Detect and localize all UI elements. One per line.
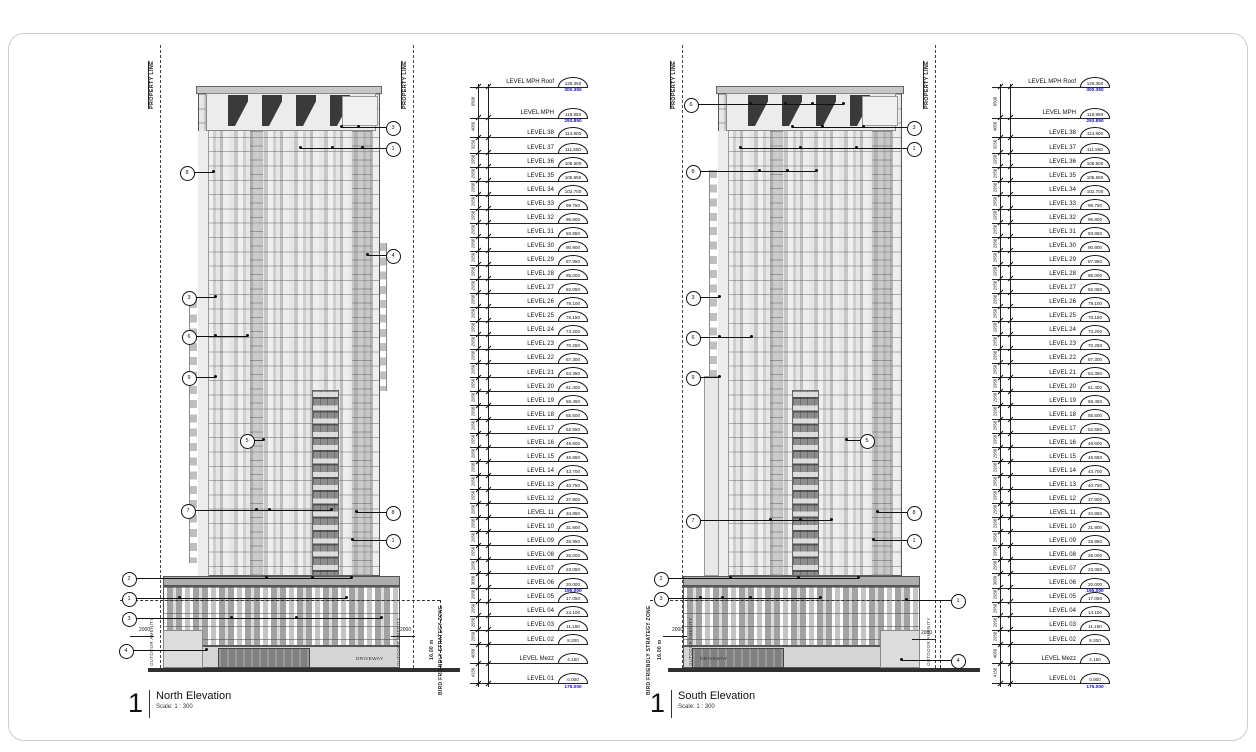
- level-label: LEVEL 24: [492, 327, 554, 334]
- keynote-circle: 3: [182, 291, 197, 306]
- keynote-circle: 4: [119, 644, 134, 659]
- level-label: LEVEL 31: [492, 229, 554, 236]
- bird-zone-height-label: 16.00 m: [657, 598, 663, 660]
- keynote-leader-dot: [268, 508, 271, 511]
- keynote-leader: [906, 600, 951, 601]
- property-line-label: PROPERTY LINE: [402, 47, 408, 109]
- keynote-leader-dot: [205, 648, 208, 651]
- setback-dimension-line: [912, 639, 936, 640]
- keynote-leader-dot: [821, 125, 824, 128]
- level-label: LEVEL 09: [492, 538, 554, 545]
- keynote-leader: [194, 510, 332, 511]
- keynote-leader: [667, 578, 859, 579]
- view-number: 1: [128, 690, 143, 716]
- keynote-circle: 8: [386, 506, 401, 521]
- level-label: LEVEL 19: [1014, 398, 1076, 405]
- north-dark-strip: [312, 390, 339, 576]
- level-label: LEVEL Mezz: [492, 656, 554, 663]
- keynote-leader-dot: [345, 596, 348, 599]
- keynote-leader-dot: [791, 125, 794, 128]
- south-tabs: [709, 170, 717, 376]
- level-label: LEVEL 32: [492, 215, 554, 222]
- keynote-circle: 5: [860, 434, 875, 449]
- setback-dimension: 2000: [139, 627, 150, 633]
- level-label: LEVEL 12: [1014, 496, 1076, 503]
- keynote-leader: [667, 598, 821, 599]
- level-label: LEVEL 26: [1014, 299, 1076, 306]
- keynote-circle: 3: [654, 592, 669, 607]
- keynote-leader-dot: [350, 576, 353, 579]
- level-label: LEVEL 20: [1014, 384, 1076, 391]
- keynote-leader: [699, 520, 832, 521]
- level-label: LEVEL 11: [492, 510, 554, 517]
- level-label: LEVEL 33: [492, 201, 554, 208]
- level-line: [1010, 84, 1011, 687]
- keynote-leader: [341, 127, 386, 128]
- bird-zone-vline: [940, 600, 941, 668]
- view-title: South Elevation: [678, 690, 755, 702]
- drawing-canvas: 1 North Elevation Scale: 1 : 300 1 South…: [0, 0, 1256, 752]
- keynote-circle: 7: [686, 514, 701, 529]
- geodetic-elevation: 175.000: [1078, 685, 1112, 690]
- geodetic-elevation: 175.000: [556, 685, 590, 690]
- level-label: LEVEL 15: [492, 454, 554, 461]
- level-label: LEVEL MPH: [492, 110, 554, 117]
- level-label: LEVEL 18: [492, 412, 554, 419]
- level-label: LEVEL 25: [1014, 313, 1076, 320]
- level-label: LEVEL 19: [492, 398, 554, 405]
- bird-zone-line: [120, 600, 440, 601]
- floor-height-dimension: 6500: [993, 91, 998, 113]
- level-label: LEVEL 14: [492, 468, 554, 475]
- keynote-leader-dot: [357, 125, 360, 128]
- driveway-label: DRIVEWAY: [356, 657, 383, 662]
- level-label: LEVEL 10: [492, 524, 554, 531]
- keynote-leader-dot: [718, 375, 721, 378]
- keynote-leader: [901, 660, 951, 661]
- keynote-leader-dot: [819, 596, 822, 599]
- level-label: LEVEL 13: [1014, 482, 1076, 489]
- title-divider: [149, 690, 150, 718]
- property-line: [413, 45, 414, 668]
- keynote-leader-dot: [355, 510, 358, 513]
- level-label: LEVEL 21: [1014, 370, 1076, 377]
- keynote-circle: 2: [122, 572, 137, 587]
- keynote-circle: 4: [386, 249, 401, 264]
- keynote-leader-dot: [799, 518, 802, 521]
- keynote-circle: 6: [686, 331, 701, 346]
- keynote-leader-dot: [758, 169, 761, 172]
- level-label: LEVEL 27: [1014, 285, 1076, 292]
- keynote-circle: 1: [907, 534, 922, 549]
- keynote-circle: 3: [122, 612, 137, 627]
- keynote-circle: 6: [684, 98, 699, 113]
- keynote-circle: 3: [907, 121, 922, 136]
- floor-height-dimension: 4150: [993, 662, 998, 684]
- level-label: LEVEL 23: [492, 341, 554, 348]
- level-label: LEVEL 25: [492, 313, 554, 320]
- keynote-leader-dot: [718, 295, 721, 298]
- level-label: LEVEL 10: [1014, 524, 1076, 531]
- keynote-leader-dot: [857, 576, 860, 579]
- setback-dimension-line: [663, 636, 687, 637]
- keynote-leader-dot: [340, 125, 343, 128]
- level-label: LEVEL 15: [1014, 454, 1076, 461]
- level-label: LEVEL 02: [492, 637, 554, 644]
- level-label: LEVEL 04: [492, 608, 554, 615]
- level-label: LEVEL 38: [492, 130, 554, 137]
- property-line-label: PROPERTY LINE: [149, 47, 155, 109]
- geodetic-elevation: 293.850: [556, 119, 590, 124]
- keynote-leader-dot: [230, 616, 233, 619]
- keynote-leader-dot: [295, 616, 298, 619]
- keynote-leader: [873, 540, 907, 541]
- property-line-label: PROPERTY LINE: [671, 47, 677, 109]
- geodetic-elevation: 300.350: [556, 88, 590, 93]
- level-label: LEVEL 13: [492, 482, 554, 489]
- keynote-leader-dot: [718, 335, 721, 338]
- keynote-leader-dot: [876, 510, 879, 513]
- south-mid-strip: [872, 131, 892, 576]
- level-label: LEVEL 37: [492, 145, 554, 152]
- level-label: LEVEL 01: [492, 676, 554, 683]
- keynote-leader: [699, 297, 720, 298]
- level-label: LEVEL 14: [1014, 468, 1076, 475]
- keynote-leader-dot: [842, 102, 845, 105]
- geodetic-elevation: 300.350: [1078, 88, 1112, 93]
- geodetic-elevation: 293.850: [1078, 119, 1112, 124]
- level-label: LEVEL 21: [492, 370, 554, 377]
- keynote-circle: 9: [182, 371, 197, 386]
- level-label: LEVEL 03: [1014, 622, 1076, 629]
- level-label: LEVEL MPH Roof: [492, 79, 554, 86]
- level-label: LEVEL 12: [492, 496, 554, 503]
- view-title-north: 1 North Elevation Scale: 1 : 300: [128, 690, 231, 718]
- keynote-circle: 1: [386, 142, 401, 157]
- level-label: LEVEL 28: [1014, 271, 1076, 278]
- level-label: LEVEL 09: [1014, 538, 1076, 545]
- level-label: LEVEL 07: [1014, 566, 1076, 573]
- keynote-leader: [195, 297, 216, 298]
- level-label: LEVEL MPH: [1014, 110, 1076, 117]
- level-label: LEVEL 27: [492, 285, 554, 292]
- setback-dimension-line: [130, 636, 154, 637]
- view-scale: Scale: 1 : 300: [678, 704, 755, 710]
- level-elevation-bubble: 26.000: [558, 549, 588, 559]
- keynote-leader-dot: [845, 438, 848, 441]
- keynote-leader: [697, 104, 844, 105]
- keynote-leader-dot: [351, 538, 354, 541]
- keynote-leader-dot: [255, 508, 258, 511]
- level-label: LEVEL 30: [1014, 243, 1076, 250]
- keynote-leader-dot: [815, 169, 818, 172]
- level-label: LEVEL 06: [1014, 580, 1076, 587]
- dimension-line: [478, 84, 479, 687]
- level-label: LEVEL 08: [492, 552, 554, 559]
- level-label: LEVEL 29: [1014, 257, 1076, 264]
- property-line: [935, 45, 936, 668]
- level-label: LEVEL 18: [1014, 412, 1076, 419]
- level-label: LEVEL 04: [1014, 608, 1076, 615]
- level-label: LEVEL Mezz: [1014, 656, 1076, 663]
- level-label: LEVEL 16: [1014, 440, 1076, 447]
- level-label: LEVEL 35: [492, 173, 554, 180]
- keynote-leader-dot: [330, 508, 333, 511]
- keynote-leader: [135, 578, 352, 579]
- south-light-box: [862, 96, 898, 126]
- level-label: LEVEL 17: [1014, 426, 1076, 433]
- property-line-label: PROPERTY LINE: [924, 47, 930, 109]
- keynote-circle: 5: [240, 434, 255, 449]
- keynote-leader-dot: [872, 538, 875, 541]
- level-elevation-bubble: 23.050: [558, 563, 588, 573]
- bird-zone-label: BIRD FRIENDLY STRATEGY ZONE: [646, 545, 652, 695]
- level-label: LEVEL 17: [492, 426, 554, 433]
- level-label: LEVEL 20: [492, 384, 554, 391]
- keynote-leader-dot: [797, 576, 800, 579]
- level-label: LEVEL 34: [492, 187, 554, 194]
- level-label: LEVEL MPH Roof: [1014, 79, 1076, 86]
- view-number: 1: [650, 690, 665, 716]
- keynote-circle: 7: [181, 504, 196, 519]
- keynote-leader-dot: [739, 146, 742, 149]
- keynote-leader: [699, 377, 720, 378]
- level-label: LEVEL 34: [1014, 187, 1076, 194]
- keynote-leader-dot: [214, 334, 217, 337]
- level-label: LEVEL 08: [1014, 552, 1076, 559]
- keynote-leader-dot: [178, 596, 181, 599]
- level-label: LEVEL 11: [1014, 510, 1076, 517]
- level-label: LEVEL 05: [1014, 594, 1076, 601]
- keynote-leader: [699, 337, 752, 338]
- keynote-leader: [195, 336, 248, 337]
- north-light-box: [342, 96, 378, 126]
- south-ground: [668, 668, 980, 672]
- floor-height-dimension: 6500: [471, 91, 476, 113]
- keynote-circle: 8: [686, 165, 701, 180]
- keynote-leader-dot: [784, 102, 787, 105]
- level-label: LEVEL 36: [492, 159, 554, 166]
- level-label: LEVEL 37: [1014, 145, 1076, 152]
- view-scale: Scale: 1 : 300: [156, 704, 231, 710]
- level-line: [488, 84, 489, 687]
- keynote-leader-dot: [699, 596, 702, 599]
- level-elevation-bubble: 26.000: [1080, 549, 1110, 559]
- keynote-circle: 2: [654, 572, 669, 587]
- keynote-leader-dot: [214, 295, 217, 298]
- driveway-label: DRIVEWAY: [700, 657, 727, 662]
- level-label: LEVEL 38: [1014, 130, 1076, 137]
- level-label: LEVEL 16: [492, 440, 554, 447]
- keynote-leader-dot: [331, 146, 334, 149]
- level-label: LEVEL 22: [1014, 355, 1076, 362]
- south-plain-wall: [880, 630, 920, 668]
- keynote-leader: [792, 127, 907, 128]
- level-label: LEVEL 24: [1014, 327, 1076, 334]
- level-label: LEVEL 23: [1014, 341, 1076, 348]
- level-label: LEVEL 28: [492, 271, 554, 278]
- keynote-circle: 1: [386, 534, 401, 549]
- keynote-circle: 8: [907, 506, 922, 521]
- keynote-leader-dot: [265, 576, 268, 579]
- level-label: LEVEL 30: [492, 243, 554, 250]
- setback-dimension: 2000: [672, 627, 683, 633]
- keynote-leader-dot: [769, 518, 772, 521]
- keynote-leader: [300, 148, 386, 149]
- keynote-leader-dot: [299, 146, 302, 149]
- property-line: [682, 45, 683, 668]
- south-mid-strip: [770, 131, 783, 576]
- keynote-leader-dot: [811, 102, 814, 105]
- view-title-south: 1 South Elevation Scale: 1 : 300: [650, 690, 755, 718]
- level-label: LEVEL 05: [492, 594, 554, 601]
- level-label: LEVEL 33: [1014, 201, 1076, 208]
- outdoor-amenity-label: OUTDOOR AMENITY: [396, 632, 401, 666]
- south-edge-strip: [718, 131, 729, 576]
- keynote-leader-dot: [786, 169, 789, 172]
- keynote-leader: [132, 650, 207, 651]
- view-title: North Elevation: [156, 690, 231, 702]
- bird-zone-line: [650, 600, 940, 601]
- level-label: LEVEL 31: [1014, 229, 1076, 236]
- keynote-leader: [877, 512, 907, 513]
- keynote-leader: [195, 377, 216, 378]
- keynote-leader-dot: [361, 146, 364, 149]
- keynote-circle: 3: [686, 291, 701, 306]
- keynote-leader-dot: [799, 146, 802, 149]
- keynote-leader-dot: [749, 102, 752, 105]
- keynote-leader: [193, 172, 214, 173]
- property-line: [160, 45, 161, 668]
- outdoor-amenity-label: OUTDOOR AMENITY: [688, 632, 693, 666]
- setback-dimension: 2000: [400, 627, 411, 633]
- title-divider: [671, 690, 672, 718]
- keynote-leader-dot: [311, 576, 314, 579]
- keynote-leader-dot: [900, 658, 903, 661]
- keynote-leader: [352, 540, 386, 541]
- south-plain-wall2: [704, 376, 719, 576]
- level-label: LEVEL 26: [492, 299, 554, 306]
- north-tabs-right: [380, 243, 387, 391]
- keynote-circle: 1: [907, 142, 922, 157]
- south-dark-strip: [792, 390, 819, 576]
- keynote-leader-dot: [246, 334, 249, 337]
- level-label: LEVEL 36: [1014, 159, 1076, 166]
- floor-height-dimension: 4150: [471, 662, 476, 684]
- keynote-leader-dot: [830, 518, 833, 521]
- keynote-leader-dot: [721, 596, 724, 599]
- keynote-circle: 6: [182, 330, 197, 345]
- keynote-circle: 3: [386, 121, 401, 136]
- keynote-leader: [846, 440, 860, 441]
- keynote-circle: 1: [951, 594, 966, 609]
- keynote-leader: [135, 618, 382, 619]
- keynote-leader-dot: [212, 170, 215, 173]
- keynote-leader: [367, 255, 386, 256]
- level-label: LEVEL 22: [492, 355, 554, 362]
- keynote-leader-dot: [262, 438, 265, 441]
- level-label: LEVEL 35: [1014, 173, 1076, 180]
- level-label: LEVEL 29: [492, 257, 554, 264]
- keynote-leader-dot: [729, 576, 732, 579]
- bird-zone-height-label: 16.00 m: [429, 598, 435, 660]
- level-label: LEVEL 02: [1014, 637, 1076, 644]
- level-label: LEVEL 32: [1014, 215, 1076, 222]
- setback-dimension: 2000: [921, 630, 932, 636]
- keynote-leader-dot: [380, 616, 383, 619]
- keynote-circle: 4: [951, 654, 966, 669]
- bird-zone-label: BIRD FRIENDLY STRATEGY ZONE: [438, 545, 444, 695]
- keynote-leader-dot: [749, 596, 752, 599]
- level-label: LEVEL 01: [1014, 676, 1076, 683]
- keynote-leader-dot: [855, 146, 858, 149]
- setback-dimension-line: [391, 636, 415, 637]
- level-label: LEVEL 07: [492, 566, 554, 573]
- north-ground: [148, 668, 460, 672]
- keynote-leader: [356, 512, 386, 513]
- keynote-leader-dot: [214, 375, 217, 378]
- level-label: LEVEL 06: [492, 580, 554, 587]
- level-label: LEVEL 03: [492, 622, 554, 629]
- keynote-circle: 1: [122, 592, 137, 607]
- keynote-circle: 9: [686, 371, 701, 386]
- keynote-leader: [740, 148, 907, 149]
- keynote-leader-dot: [366, 253, 369, 256]
- keynote-leader-dot: [862, 125, 865, 128]
- keynote-circle: 8: [180, 166, 195, 181]
- dimension-line: [1000, 84, 1001, 687]
- north-garage: [218, 648, 310, 668]
- keynote-leader-dot: [905, 598, 908, 601]
- keynote-leader-dot: [750, 335, 753, 338]
- keynote-leader: [135, 598, 347, 599]
- level-elevation-bubble: 23.050: [1080, 563, 1110, 573]
